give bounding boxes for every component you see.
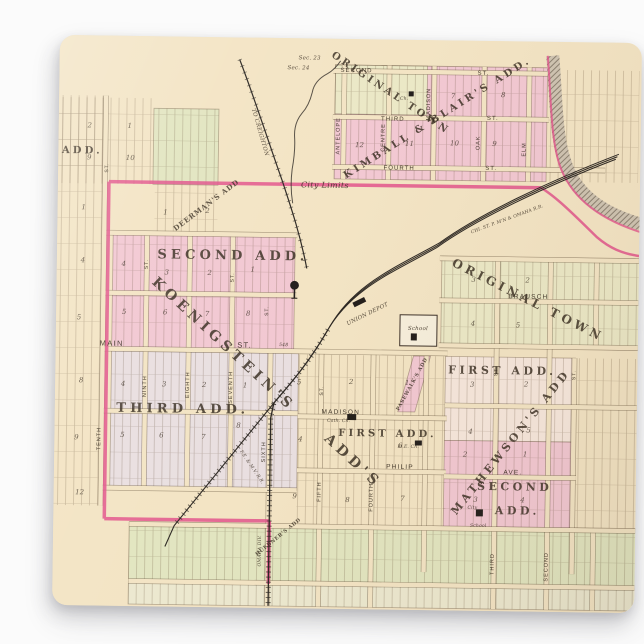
map-label-eighth: EIGHTH [185, 371, 191, 398]
map-label-sixth: SIXTH [261, 441, 267, 462]
map-label-6: 6 [159, 431, 164, 439]
map-label-9: 9 [87, 153, 92, 161]
map-label-fourth: FOURTH [383, 165, 414, 171]
map-label-7: 7 [400, 495, 405, 503]
church-building-original-town [409, 91, 414, 96]
map-label-sec-23: Sec. 23 [299, 55, 322, 61]
map-label-1: 1 [405, 379, 410, 387]
map-label-st-: ST. [485, 166, 497, 172]
map-label-2: 2 [86, 121, 92, 129]
map-label-centre: CENTRE [380, 123, 386, 152]
map-label-fourth: FOURTH [368, 483, 374, 512]
map-label-9: 9 [492, 140, 497, 148]
label-second-add: SECOND ADD. [157, 247, 308, 264]
map-label-st-: ST. [104, 163, 110, 173]
map-label-st-: ST. [487, 116, 499, 122]
map-label-third: THIRD [381, 116, 405, 122]
map-label-7: 7 [451, 92, 456, 100]
map-label-philip: PHILIP [386, 464, 414, 471]
map-label-8: 8 [345, 496, 350, 504]
magnet-product: ORIGINAL TOWNKIMBALL & BLAIR'S ADD.DEERM… [52, 35, 642, 613]
label-add-cutoff: ADD. [61, 145, 103, 157]
map-label-1: 1 [163, 208, 168, 216]
map-label-6: 6 [163, 308, 168, 316]
map-label-6: 6 [398, 442, 403, 450]
map-label-elm: ELM [521, 142, 527, 156]
map-label-11: 11 [405, 140, 414, 148]
map-label-4: 4 [121, 260, 127, 268]
map-label-5: 5 [77, 313, 82, 321]
map-label-2: 2 [201, 381, 207, 389]
map-label-st-: ST. [319, 386, 325, 396]
school-building [411, 333, 417, 340]
map-label-tenth: TENTH [96, 427, 102, 450]
map-label-2: 2 [524, 276, 530, 284]
label-second-add-east-line1: SECOND [477, 480, 553, 494]
map-label-third: THIRD [490, 553, 496, 575]
map-label-st-: ST. [230, 272, 236, 282]
map-label-9: 9 [74, 433, 79, 441]
map-label-3: 3 [164, 268, 169, 276]
label-school: School [408, 326, 428, 332]
map-label-5: 5 [122, 308, 127, 316]
map-label-9: 9 [292, 492, 297, 500]
map-label-st-: ST. [493, 366, 499, 376]
map-label-oak: OAK [475, 135, 481, 150]
map-label-seventh: SEVENTH [228, 371, 234, 404]
map-label-4: 4 [120, 380, 126, 388]
map-label-second: SECOND [340, 68, 372, 74]
map-label-main: MAIN [100, 339, 124, 348]
map-label-fifth: FIFTH [317, 481, 323, 502]
map-label-8: 8 [236, 421, 241, 429]
label-second-add-east-line2: ADD. [494, 504, 540, 518]
map-label-2: 2 [462, 451, 468, 459]
map-label-madison: MADISON [321, 409, 360, 417]
map-label-8: 8 [501, 91, 506, 99]
label-catholic-church: Cath. Ch. [327, 418, 351, 424]
map-label-1: 1 [250, 266, 255, 274]
map-label-12: 12 [355, 141, 365, 149]
map-label-st-: ST. [571, 370, 577, 380]
label-city-limits: City Limits [301, 180, 349, 190]
map-label-ave-: AVE. [503, 469, 522, 476]
map-label-2: 2 [204, 207, 210, 215]
map-label-12: 12 [75, 488, 85, 496]
map-label-5: 5 [297, 378, 302, 386]
map-label-1: 1 [243, 382, 248, 390]
map-label-madison: MADISON [426, 88, 432, 121]
map-label-8: 8 [246, 310, 251, 318]
map-label-3: 3 [162, 380, 167, 388]
label-city-school-line1: City [467, 505, 477, 511]
label-omaha-div: OMAHA DIV. [257, 535, 263, 567]
map-graphic: ORIGINAL TOWNKIMBALL & BLAIR'S ADD.DEERM… [52, 35, 642, 613]
map-label-st-: ST. [478, 71, 490, 77]
map-label-5: 5 [526, 427, 531, 435]
map-label-st-: ST. [264, 306, 270, 316]
label-church: Ch. [400, 96, 409, 102]
map-label-brausch: BRAUSCH [508, 293, 548, 301]
map-label-10: 10 [126, 154, 136, 162]
map-label-4: 4 [519, 496, 525, 504]
map-label-2: 2 [523, 380, 529, 388]
map-label-548: 548 [279, 342, 288, 348]
map-label-3: 3 [471, 276, 476, 284]
map-label-8: 8 [79, 376, 84, 384]
map-label-4: 4 [470, 320, 476, 328]
label-city-school-line2: School [470, 523, 487, 529]
map-label-4: 4 [297, 435, 303, 443]
map-label-3: 3 [473, 496, 478, 504]
label-first-add-center: FIRST ADD. [338, 428, 437, 440]
map-label-5: 5 [516, 321, 521, 329]
map-label-7: 7 [201, 433, 206, 441]
map-label-st-: ST. [237, 340, 252, 349]
photo-background: ORIGINAL TOWNKIMBALL & BLAIR'S ADD.DEERM… [0, 0, 644, 644]
map-label-1: 1 [81, 203, 86, 211]
map-label-5: 5 [120, 431, 125, 439]
map-label-antelope: ANTELOPE [335, 117, 342, 154]
map-label-ninth: NINTH [142, 375, 148, 397]
map-label-4: 4 [80, 256, 86, 264]
map-label-1: 1 [127, 122, 132, 130]
map-label-7: 7 [205, 310, 210, 318]
map-label-second: SECOND [543, 552, 549, 582]
map-label-2: 2 [206, 269, 212, 277]
map-label-2: 2 [348, 378, 354, 386]
map-label-10: 10 [450, 139, 460, 147]
map-label-st-: ST. [144, 259, 150, 269]
label-first-add-east: FIRST ADD. [448, 363, 556, 378]
map-label-sec-24: Sec. 24 [287, 65, 310, 71]
map-label-1: 1 [523, 450, 528, 458]
map-label-4: 4 [467, 428, 473, 436]
map-label-3: 3 [470, 381, 475, 389]
